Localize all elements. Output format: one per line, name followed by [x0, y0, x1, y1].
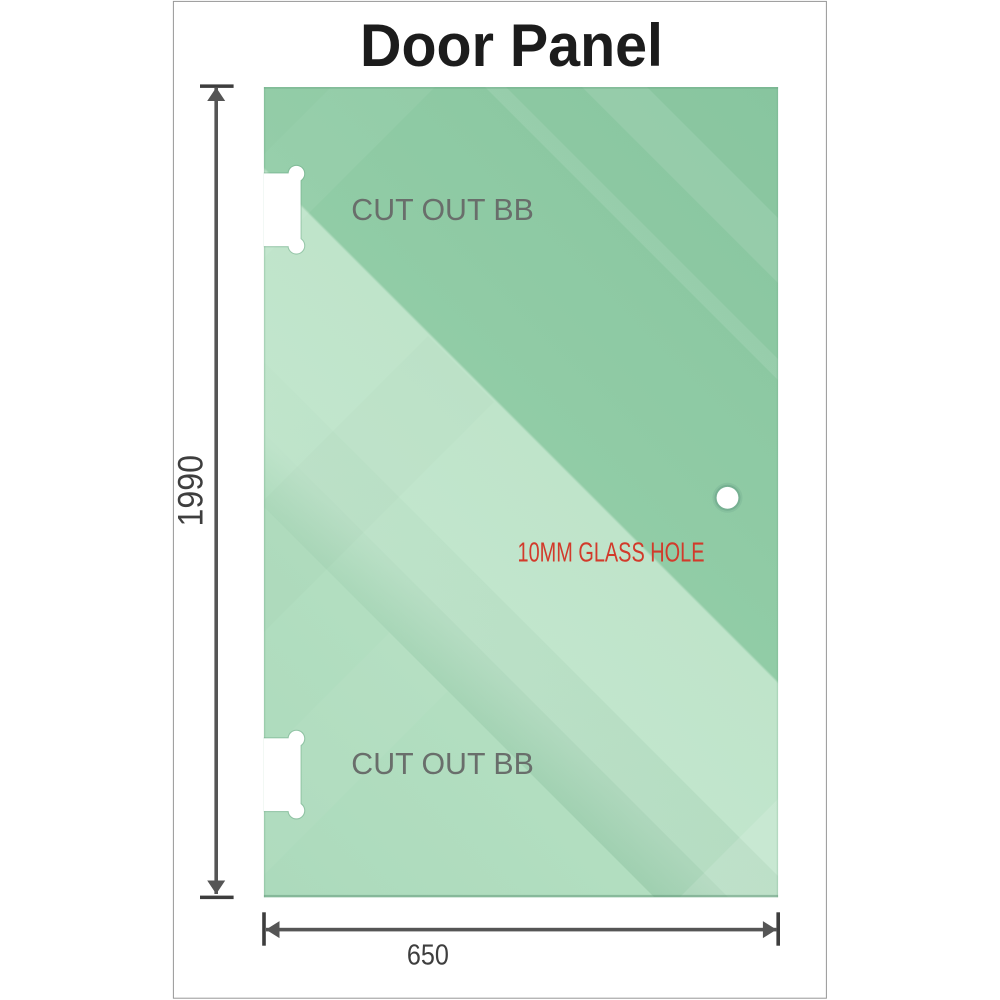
svg-text:650: 650 [407, 939, 449, 971]
svg-text:Door Panel: Door Panel [360, 12, 663, 79]
svg-text:CUT OUT BB: CUT OUT BB [351, 192, 534, 227]
svg-text:1990: 1990 [172, 455, 211, 527]
svg-text:CUT OUT BB: CUT OUT BB [351, 746, 534, 781]
svg-text:10MM GLASS HOLE: 10MM GLASS HOLE [518, 537, 705, 568]
